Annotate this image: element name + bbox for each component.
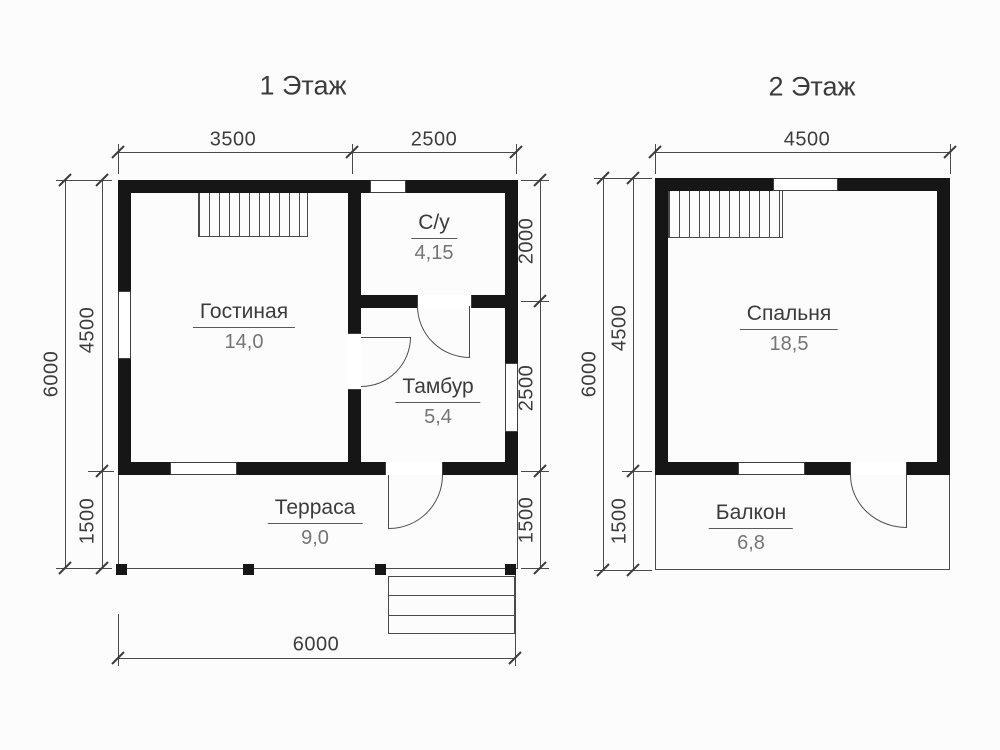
room-label-living: Гостиная 14,0: [193, 300, 295, 354]
f1-window-right: [505, 363, 518, 432]
room-area-bedroom: 18,5: [740, 330, 838, 356]
f1-dim-right-line: [540, 180, 541, 568]
f1-window-bottom: [170, 462, 237, 475]
room-label-vestibule: Тамбур 5,4: [395, 375, 480, 429]
f1-door-arc-bathroom: [417, 306, 470, 358]
f1-step-line: [389, 615, 514, 616]
f1-dim-right-ext: [521, 471, 549, 472]
f2-dim-top-total-label: 4500: [784, 129, 831, 152]
floor2-title: 2 Этаж: [768, 72, 855, 103]
room-label-bedroom: Спальня 18,5: [740, 302, 838, 356]
f1-door-leaf-living: [361, 337, 411, 338]
f2-stairs-hatch: [668, 191, 783, 238]
f1-wall-interior-vertical: [348, 193, 361, 462]
room-name-balcony: Балкон: [709, 501, 793, 529]
f1-step-line: [389, 595, 514, 596]
f1-stairs-hatch: [198, 193, 308, 237]
floorplan-canvas: 1 Этаж 3500 2500 6000 4500 1500 2000 250…: [0, 0, 1000, 750]
room-area-living: 14,0: [193, 328, 295, 354]
f1-dim-left-inner-line: [102, 180, 103, 568]
f1-door-leaf-bathroom: [469, 306, 470, 358]
f1-dim-left-outer-line: [65, 180, 66, 568]
room-area-balcony: 6,8: [709, 529, 793, 555]
f1-dim-bottom-line: [118, 658, 516, 659]
f1-dim-top-line: [118, 152, 516, 153]
room-area-bathroom: 4,15: [411, 239, 457, 265]
f2-balcony-edge-left: [655, 475, 656, 569]
f1-terrace-post: [243, 564, 254, 575]
f1-dim-right-bathroom-label: 2000: [516, 218, 539, 265]
f2-wall-right: [937, 178, 950, 475]
f1-terrace-edge-left: [118, 475, 119, 568]
f2-wall-left: [655, 178, 668, 475]
f1-dim-top-left-label: 3500: [210, 129, 257, 152]
f1-dim-top-right-label: 2500: [411, 129, 458, 152]
f1-door-leaf-terrace: [388, 475, 389, 529]
f1-dim-right-ext: [521, 568, 549, 569]
f1-dim-right-vestibule-label: 2500: [516, 365, 539, 412]
f1-window-top: [370, 180, 406, 193]
f1-dim-bottom-ext-right: [515, 572, 516, 666]
f1-entrance-steps: [388, 576, 515, 634]
f2-window-bottom: [738, 462, 805, 475]
f1-terrace-edge-bottom: [118, 568, 518, 569]
f1-terrace-post: [116, 564, 127, 575]
f2-door-leaf-balcony: [906, 475, 907, 528]
f2-door-opening-balcony: [850, 462, 907, 475]
f2-balcony-edge-bottom: [655, 569, 950, 570]
room-name-vestibule: Тамбур: [395, 375, 480, 403]
f1-wall-top: [118, 180, 518, 193]
room-label-terrace: Терраса 9,0: [268, 496, 363, 550]
f1-dim-right-terrace-label: 1500: [516, 497, 539, 544]
room-name-bathroom: С/у: [411, 211, 457, 239]
room-area-vestibule: 5,4: [395, 403, 480, 429]
floor1-title: 1 Этаж: [259, 71, 346, 102]
f1-dim-right-ext: [521, 301, 549, 302]
f1-door-opening-terrace: [385, 462, 443, 475]
f1-window-left: [118, 291, 131, 359]
room-name-terrace: Терраса: [268, 496, 363, 524]
f2-window-top: [773, 178, 838, 191]
room-name-living: Гостиная: [193, 300, 295, 328]
f1-dim-right-ext: [521, 180, 549, 181]
f1-door-arc-terrace: [389, 475, 443, 529]
f1-door-opening-living: [348, 333, 361, 390]
f2-dim-top-line: [655, 152, 950, 153]
f2-dim-left-inner-line: [633, 178, 634, 570]
room-label-balcony: Балкон 6,8: [709, 501, 793, 555]
room-name-bedroom: Спальня: [740, 302, 838, 330]
f2-dim-left-ext-mid: [622, 471, 652, 472]
f2-balcony-edge-right: [949, 475, 950, 569]
f1-terrace-post: [505, 564, 516, 575]
f1-dim-left-main-label: 4500: [77, 307, 100, 354]
room-area-terrace: 9,0: [268, 524, 363, 550]
f2-door-arc-balcony: [850, 475, 907, 528]
f1-dim-bottom-total-label: 6000: [293, 634, 340, 657]
f1-dim-left-terrace-label: 1500: [77, 498, 100, 545]
f1-dim-left-total-label: 6000: [41, 351, 64, 398]
f2-dim-left-outer-line: [603, 178, 604, 570]
f1-terrace-post: [375, 564, 386, 575]
f2-dim-left-total-label: 6000: [579, 351, 602, 398]
f2-dim-left-main-label: 4500: [609, 305, 632, 352]
room-label-bathroom: С/у 4,15: [411, 211, 457, 265]
f1-terrace-edge-right: [517, 475, 518, 568]
f2-dim-left-balcony-label: 1500: [609, 498, 632, 545]
